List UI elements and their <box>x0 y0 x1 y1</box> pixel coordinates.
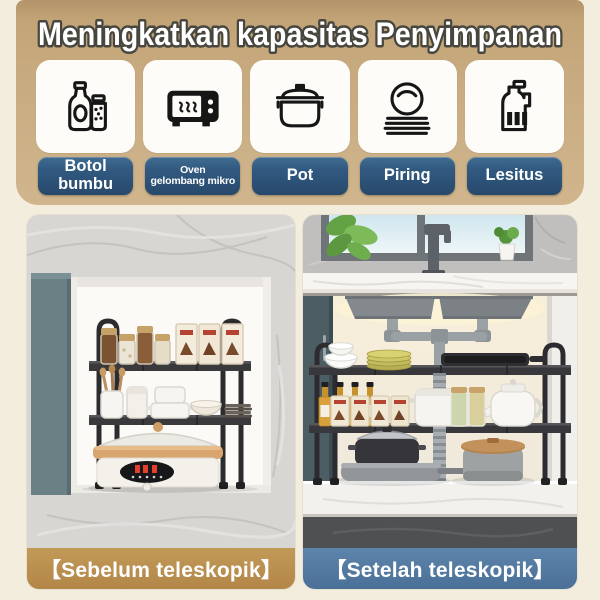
floor <box>303 481 577 548</box>
photo-before: 【Sebelum teleskopik】 <box>27 215 295 589</box>
feature-jug: Lesitus <box>465 60 564 195</box>
pot-icon <box>270 77 330 137</box>
snack-packs <box>176 324 243 364</box>
feature-label-piring: Piring <box>360 157 455 195</box>
comparison-photos: 【Sebelum teleskopik】 <box>27 215 577 589</box>
jug-icon <box>484 77 544 137</box>
cabinet-door <box>31 273 71 495</box>
icon-card <box>358 60 457 153</box>
feature-row: Botol bumbu <box>36 60 564 195</box>
plate-stack-yellow <box>367 350 411 370</box>
icon-card <box>143 60 242 153</box>
bowl-stack <box>325 343 357 368</box>
icon-card <box>36 60 135 153</box>
promo-image: Meningkatkan kapasitas Penyimpanan <box>0 0 600 600</box>
stock-pot <box>451 438 535 486</box>
feature-label-botol-bumbu: Botol bumbu <box>38 157 133 195</box>
caption-before-telescopic: 【Sebelum teleskopik】 <box>27 548 295 589</box>
feature-plates: Piring <box>358 60 457 195</box>
feature-label-pot: Pot <box>252 157 347 195</box>
header-banner: Meningkatkan kapasitas Penyimpanan <box>16 0 584 205</box>
photo-before-scene <box>27 215 295 548</box>
countertop <box>303 273 577 296</box>
plates-icon <box>377 77 437 137</box>
page-title-graphic: Meningkatkan kapasitas Penyimpanan <box>16 6 584 58</box>
feature-pot: Pot <box>250 60 349 195</box>
feature-label-oven-mikro: Oven gelombang mikro <box>145 157 240 195</box>
canister <box>127 387 147 418</box>
spice-bottles-icon <box>56 77 116 137</box>
photo-after: 【Setelah teleskopik】 <box>303 215 577 589</box>
caption-after-telescopic: 【Setelah teleskopik】 <box>303 548 577 589</box>
feature-spice-bottles: Botol bumbu <box>36 60 135 195</box>
microwave-icon <box>163 77 223 137</box>
photo-after-scene <box>303 215 577 548</box>
icon-card <box>465 60 564 153</box>
icon-card <box>250 60 349 153</box>
feature-label-lesitus: Lesitus <box>467 157 562 195</box>
feature-microwave: Oven gelombang mikro <box>143 60 242 195</box>
page-title: Meningkatkan kapasitas Penyimpanan <box>38 16 562 52</box>
